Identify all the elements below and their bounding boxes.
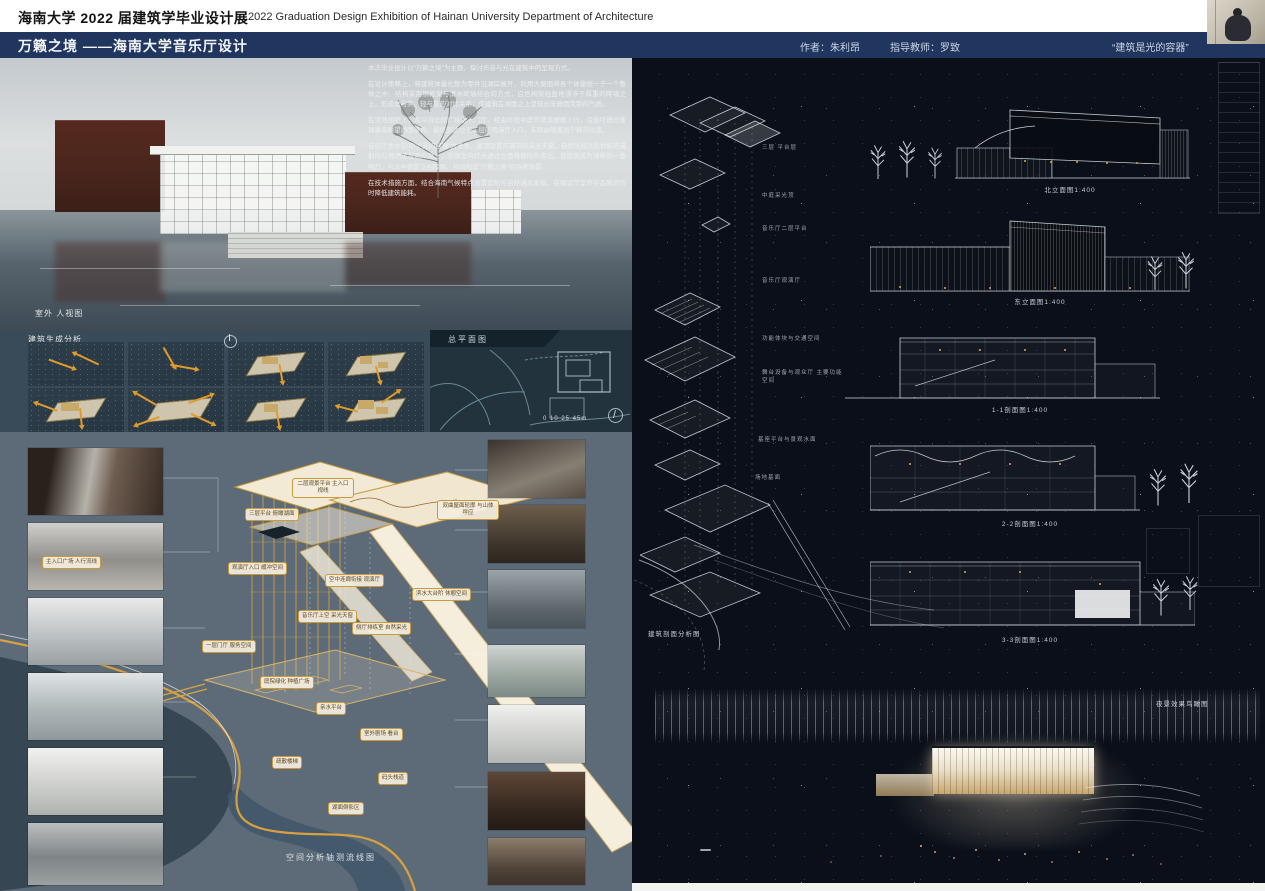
author-label: 作者：朱利昂 [800,39,860,54]
drawing-label: 2-2剖面图1:400 [945,518,1115,528]
reflection-shape [160,242,346,292]
edge-detail-drawing [1198,515,1260,587]
axon-callout: 音乐厅上空 采光天窗 [298,610,357,623]
axon-callout: 湖面倒影区 [328,802,364,815]
axon-callout: 室外剧场 看台 [360,728,403,741]
gen-diagram [328,388,424,432]
presentation-board: 海南大学 2022 届建筑学毕业设计展 2022 Graduation Desi… [0,0,1265,891]
generation-analysis-strip: 建筑生成分析 [0,330,430,432]
axon-callout: 滨水大台阶 休憩空间 [412,588,471,601]
interior-render-thumb [488,705,585,763]
interior-render-thumb [488,570,585,628]
interior-render-thumb [28,448,163,515]
axon-callout: 二层观景平台 主入口视线 [292,478,354,498]
flow-axon-label: 空间分析轴测流线图 [286,852,376,863]
compass-icon [608,408,623,423]
axon-callout: 庭院绿化 种植广场 [260,676,314,689]
quote-label: “建筑是光的容器” [1112,39,1189,54]
interior-render-thumb [28,598,163,665]
interior-render-thumb [488,838,585,885]
tree-cluster [1143,246,1201,294]
drawing-label: 东立面图1:400 [955,296,1125,306]
window-frame [1215,0,1216,44]
interior-render-thumb [488,440,585,498]
exploded-label: 基座平台与景观水面 [758,437,850,445]
north-elevation-drawing [955,100,1190,182]
drawing-label: 1-1剖面图1:400 [935,404,1105,414]
bottom-margin-strip [632,883,1265,891]
gen-diagram [28,388,124,432]
axon-callout: 侧厅排练室 自然采光 [352,622,411,635]
site-plan-label: 总平面图 [448,334,488,345]
gen-diagram [128,342,224,386]
exterior-view-label: 室外 人视图 [35,308,83,319]
site-plan-tab: 总平面图 [430,330,560,347]
water-streak [330,285,570,286]
project-title: 万籁之境 ——海南大学音乐厅设计 [18,36,248,56]
exploded-label: 舞台设备与观众厅 主要功能空间 [762,370,846,385]
glass-hall-volume [160,154,346,234]
description-paragraph: 在技术措施方面，结合海南气候特点设置遮阳与自然通风系统，在保证厅堂声学品质的同时… [368,179,626,199]
gen-diagram [328,342,424,386]
section-analysis-label: 建筑剖面分析图 [648,628,701,638]
exterior-render-thumb [488,645,585,697]
edge-detail-drawing [1146,528,1190,574]
exploded-label: 中庭采光顶 [762,193,854,201]
description-paragraph: 音乐厅主体空间以“光的容器”为意象，屋顶设置可调节的采光天窗，自然光经过反射板的… [368,142,626,172]
night-view-label: 夜景效果鸟瞰图 [1156,698,1209,708]
gen-diagram [28,342,124,386]
axon-callout: 疏散楼梯 [272,756,302,769]
axon-callout: 双曲屋面轮廓 与山体呼应 [437,500,499,520]
axon-callout: 三层平台 俯瞰湖面 [245,508,299,521]
water-light-dots [920,845,922,847]
scale-bar-text: 0 10 25 45m [543,416,587,422]
tree-cluster [1145,452,1203,514]
axon-callout: 码头栈道 [378,772,408,785]
night-building-main [932,748,1094,794]
gen-diagram [228,388,324,432]
header-bar: 海南大学 2022 届建筑学毕业设计展 2022 Graduation Desi… [0,0,1265,32]
person-body [1225,15,1251,41]
east-elevation-drawing [870,213,1190,295]
tree-cluster [866,134,952,180]
school-title: 海南大学 2022 届建筑学毕业设计展 [18,8,248,28]
description-paragraph: 在流线组织上，观众自北侧广场进入门厅，经由环绕中庭的坡道缓缓上行，沿途可透过玻璃… [368,116,626,136]
section-1-1-drawing [845,330,1160,402]
axon-callout: 观演厅入口 缓冲空间 [228,562,287,575]
reflection-shape [55,242,165,302]
edge-detail-drawing [1218,62,1260,214]
axon-callout: 一层门厅 服务空间 [202,640,256,653]
exploded-label: 音乐厅观演厅 [762,278,854,286]
section-2-2-drawing [870,430,1140,518]
interior-render-thumb [488,772,585,830]
water-reflection [55,242,525,322]
gen-diagram [128,388,224,432]
exploded-label: 音乐厅二层平台 [762,226,854,234]
water-streak [40,268,240,269]
interior-render-thumb [488,505,585,563]
axon-callout: 亲水平台 [316,702,346,715]
gen-diagram [228,342,324,386]
interior-render-thumb [28,673,163,740]
axon-callout: 空中连廊衔接 观演厅 [325,574,384,587]
exhibition-title-en: 2022 Graduation Design Exhibition of Hai… [248,11,653,23]
axon-callout: 主入口广场 人行流线 [42,556,101,569]
night-building-wing [876,774,934,796]
interior-render-thumb [28,748,163,815]
brick-volume-left [55,120,165,212]
advisor-label: 指导教师：罗致 [890,39,960,54]
author-photo [1207,0,1265,44]
design-description: 本次毕业设计以“万籁之境”为主题，探讨声音与光在建筑中的呈现方式。 在设计策略上… [368,64,626,205]
description-paragraph: 本次毕业设计以“万籁之境”为主题，探讨声音与光在建筑中的呈现方式。 [368,64,626,74]
water-streak [120,305,420,306]
reflection-shape [345,242,471,286]
exploded-label: 场地基面 [755,475,847,483]
title-bar: 万籁之境 ——海南大学音乐厅设计 作者：朱利昂 指导教师：罗致 “建筑是光的容器… [0,32,1265,58]
shoreline-contours [634,540,954,680]
plaza-arc-steps [1075,778,1207,848]
drawing-label: 3-3剖面图1:400 [945,634,1115,644]
drawing-label: 北立面图1:400 [985,184,1155,194]
north-arrow-icon [224,335,237,348]
description-paragraph: 在设计策略上，将建筑体量化整为零并沿湖岸展开，利用大屋面将各个体量统一于一个整体… [368,80,626,110]
site-plan-panel: 总平面图 [430,330,632,432]
exploded-label: 三层 平台层 [762,145,854,153]
roof-slab [150,146,355,154]
exploded-label: 功能体块与交通空间 [762,336,854,344]
interior-render-thumb [28,823,163,885]
boat [700,849,711,851]
